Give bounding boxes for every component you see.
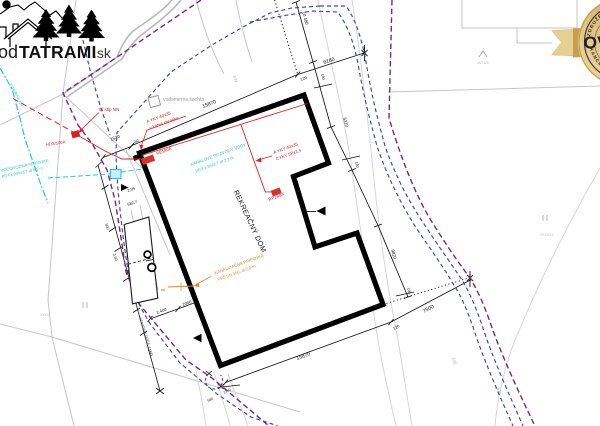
svg-text:od: od [0, 42, 18, 62]
svg-text:.sk: .sk [93, 45, 112, 61]
svg-text:El stlp NN: El stlp NN [99, 107, 119, 112]
svg-text:vodomerna šachta: vodomerna šachta [163, 97, 204, 103]
svg-text:TATRAMI: TATRAMI [19, 42, 97, 62]
svg-text:xxxx: xxxx [40, 312, 50, 317]
svg-text:xxxxxx: xxxxxx [540, 232, 554, 237]
svg-text:4674/8: 4674/8 [477, 61, 489, 65]
svg-text:OVE: OVE [584, 33, 600, 53]
svg-text:na: na [161, 288, 165, 292]
